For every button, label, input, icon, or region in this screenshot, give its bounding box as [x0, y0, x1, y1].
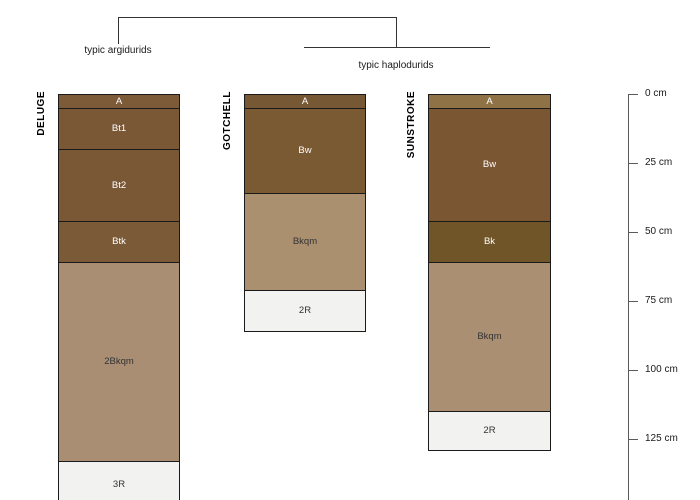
horizon-label: Btk [112, 237, 126, 247]
depth-axis-tick [628, 163, 638, 164]
depth-axis-tick [628, 232, 638, 233]
dendrogram-label-argidurids: typic argidurids [38, 45, 198, 56]
dendrogram-branch-argidurids [118, 17, 119, 44]
horizon-label: Bt2 [112, 181, 126, 191]
horizon-sunstroke-bw: Bw [428, 108, 551, 222]
horizon-label: A [302, 97, 308, 107]
horizon-sunstroke-bk: Bk [428, 221, 551, 263]
horizon-sunstroke-bkqm: Bkqm [428, 262, 551, 412]
depth-axis-tick [628, 94, 638, 95]
horizon-label: Bw [483, 160, 496, 170]
horizon-label: 3R [113, 480, 125, 490]
depth-axis-tick [628, 301, 638, 302]
soil-profile-figure: typic argidurids typic haplodurids DELUG… [0, 0, 700, 500]
depth-axis-tick-label: 75 cm [645, 295, 672, 307]
horizon-deluge-bt2: Bt2 [58, 149, 180, 222]
horizon-label: Bkqm [477, 332, 501, 342]
depth-axis-tick [628, 439, 638, 440]
horizon-deluge-bt1: Bt1 [58, 108, 180, 150]
horizon-label: Bt1 [112, 124, 126, 134]
depth-axis-tick-label: 50 cm [645, 226, 672, 238]
horizon-label: A [116, 97, 122, 107]
depth-axis-tick-label: 25 cm [645, 157, 672, 169]
horizon-label: Bkqm [293, 237, 317, 247]
horizon-label: 2R [483, 426, 495, 436]
profile-name-label: GOTCHELL [222, 91, 233, 150]
horizon-deluge-a: A [58, 94, 180, 109]
horizon-sunstroke-a: A [428, 94, 551, 109]
horizon-gotchell-bkqm: Bkqm [244, 193, 366, 291]
depth-axis-tick-label: 0 cm [645, 88, 667, 100]
dendrogram-root-line [118, 17, 397, 18]
depth-axis-tick-label: 100 cm [645, 364, 678, 376]
horizon-deluge-btk: Btk [58, 221, 180, 263]
horizon-label: Bk [484, 237, 495, 247]
depth-axis-tick [628, 370, 638, 371]
horizon-deluge-3r: 3R [58, 461, 180, 500]
horizon-label: 2Bkqm [104, 357, 134, 367]
profile-name-label: DELUGE [36, 91, 47, 136]
horizon-label: Bw [298, 146, 311, 156]
horizon-gotchell-2r: 2R [244, 290, 366, 332]
depth-axis-tick-label: 125 cm [645, 433, 678, 445]
dendrogram-label-haplodurids: typic haplodurids [316, 60, 476, 71]
dendrogram-branch-haplodurids [396, 17, 397, 48]
horizon-label: 2R [299, 306, 311, 316]
horizon-gotchell-a: A [244, 94, 366, 109]
horizon-sunstroke-2r: 2R [428, 411, 551, 451]
profile-name-label: SUNSTROKE [406, 91, 417, 158]
dendrogram-cluster-line-haplodurids [304, 47, 490, 48]
horizon-label: A [486, 97, 492, 107]
horizon-deluge-2bkqm: 2Bkqm [58, 262, 180, 462]
horizon-gotchell-bw: Bw [244, 108, 366, 194]
